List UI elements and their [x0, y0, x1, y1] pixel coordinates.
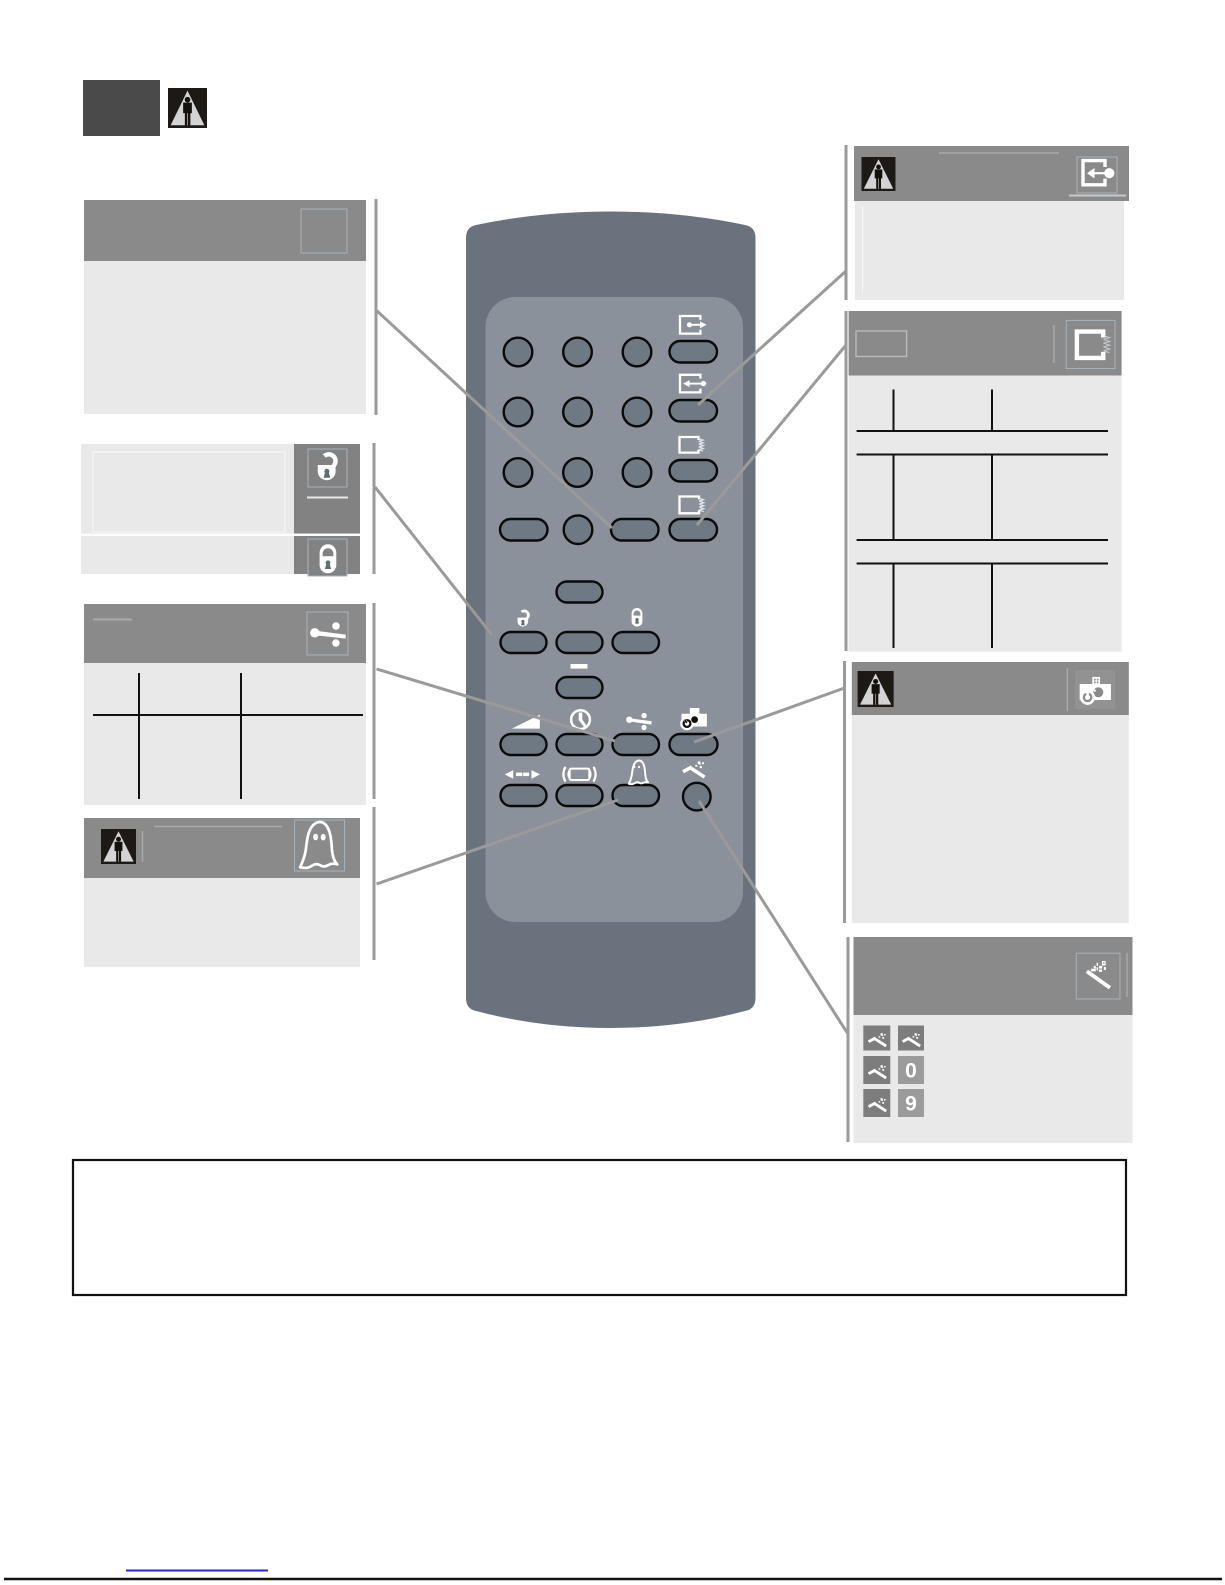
svg-text:0: 0 [905, 1060, 917, 1083]
svg-text:9: 9 [905, 1093, 917, 1116]
